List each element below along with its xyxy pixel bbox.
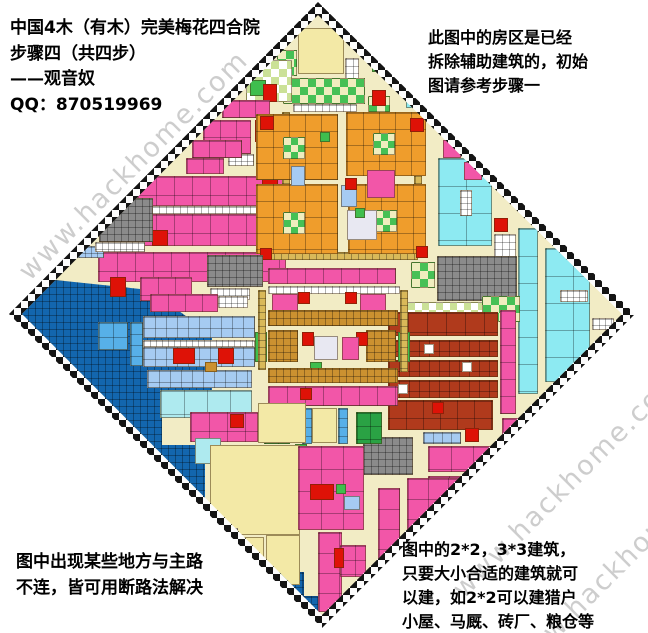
note-line: 不连，皆可用断路法解决	[16, 576, 203, 602]
note-line: 此图中的房区是已经	[428, 26, 588, 50]
map-block	[207, 255, 263, 287]
map-block	[423, 432, 461, 444]
note-line: 只要大小合适的建筑就可	[402, 562, 594, 586]
map-block	[98, 322, 128, 350]
note-bottom-left: 图中出现某些地方与主路 不连，皆可用断路法解决	[16, 550, 203, 601]
map-block	[218, 348, 234, 364]
map-block	[355, 208, 365, 218]
map-block	[336, 484, 346, 494]
map-block	[345, 292, 357, 304]
map-block	[205, 362, 217, 372]
map-block	[268, 310, 398, 326]
map-block	[258, 403, 306, 443]
note-bottom-right: 图中的2*2，3*3建筑， 只要大小合适的建筑就可 以建，如2*2可以建猎户 小…	[402, 538, 594, 633]
map-block	[300, 388, 312, 400]
note-line: QQ：870519969	[10, 93, 260, 119]
map-block	[465, 428, 479, 442]
note-line: 图请参考步骤一	[428, 74, 588, 98]
map-block	[416, 246, 428, 258]
map-block	[366, 330, 396, 362]
map-block	[298, 28, 344, 74]
map-block	[398, 58, 424, 70]
map-block	[268, 330, 298, 362]
map-block	[338, 408, 348, 444]
note-top-left: 中国4木（有木）完美梅花四合院 步骤四（共四步） ——观音奴 QQ：870519…	[10, 16, 260, 118]
map-block	[460, 190, 472, 216]
map-block	[150, 294, 218, 312]
map-block	[130, 322, 143, 366]
map-block	[367, 170, 395, 198]
map-block	[291, 166, 305, 186]
map-canvas: www.hackhome.com www.hackhome.com www.ha…	[0, 0, 648, 633]
note-line: 步骤四（共四步）	[10, 42, 260, 68]
map-block	[192, 140, 242, 158]
map-block	[424, 344, 434, 354]
map-block	[147, 370, 252, 388]
map-block	[437, 256, 517, 301]
map-block	[373, 133, 395, 155]
map-block	[230, 414, 244, 428]
map-block	[312, 408, 337, 443]
note-line: 以建，如2*2可以建猎户	[402, 586, 594, 610]
map-block	[302, 332, 314, 346]
map-block	[500, 310, 516, 414]
map-block	[143, 316, 255, 338]
map-block	[186, 158, 224, 174]
map-block	[494, 218, 508, 232]
map-block	[173, 348, 195, 364]
map-block	[518, 228, 538, 394]
map-block	[268, 286, 400, 294]
map-block	[345, 178, 357, 190]
map-block	[452, 526, 476, 538]
map-block	[268, 368, 398, 383]
map-block	[344, 496, 360, 510]
note-top-right: 此图中的房区是已经 拆除辅助建筑的，初始 图请参考步骤一	[428, 26, 588, 98]
map-block	[218, 296, 248, 308]
note-line: 图中出现某些地方与主路	[16, 550, 203, 576]
note-line: 小屋、马厩、砖厂、粮仓等	[402, 610, 594, 633]
map-block	[462, 362, 472, 372]
map-block	[268, 268, 396, 284]
map-block	[143, 347, 255, 367]
map-block	[356, 412, 382, 444]
note-line: 拆除辅助建筑的，初始	[428, 50, 588, 74]
map-block	[400, 290, 408, 372]
map-block	[310, 484, 334, 500]
map-block	[283, 212, 305, 234]
map-block	[298, 292, 310, 304]
note-line: 中国4木（有木）完美梅花四合院	[10, 16, 260, 42]
map-block	[334, 548, 344, 568]
map-block	[258, 290, 266, 370]
note-line: ——观音奴	[10, 67, 260, 93]
map-block	[470, 498, 494, 510]
map-block	[283, 137, 305, 159]
map-block	[320, 132, 330, 142]
map-block	[314, 336, 338, 360]
map-block	[375, 210, 397, 232]
map-block	[411, 262, 435, 288]
map-block	[143, 340, 255, 347]
map-block	[372, 90, 386, 106]
map-block	[488, 470, 512, 482]
note-line: 图中的2*2，3*3建筑，	[402, 538, 594, 562]
map-block	[95, 242, 145, 252]
map-block	[152, 230, 168, 246]
map-block	[432, 402, 444, 414]
map-block	[260, 116, 274, 130]
map-block	[342, 337, 359, 360]
map-block	[293, 104, 357, 112]
map-block	[283, 78, 365, 104]
map-block	[110, 277, 126, 297]
map-block	[560, 290, 588, 302]
map-block	[398, 384, 408, 394]
map-block	[410, 118, 424, 132]
